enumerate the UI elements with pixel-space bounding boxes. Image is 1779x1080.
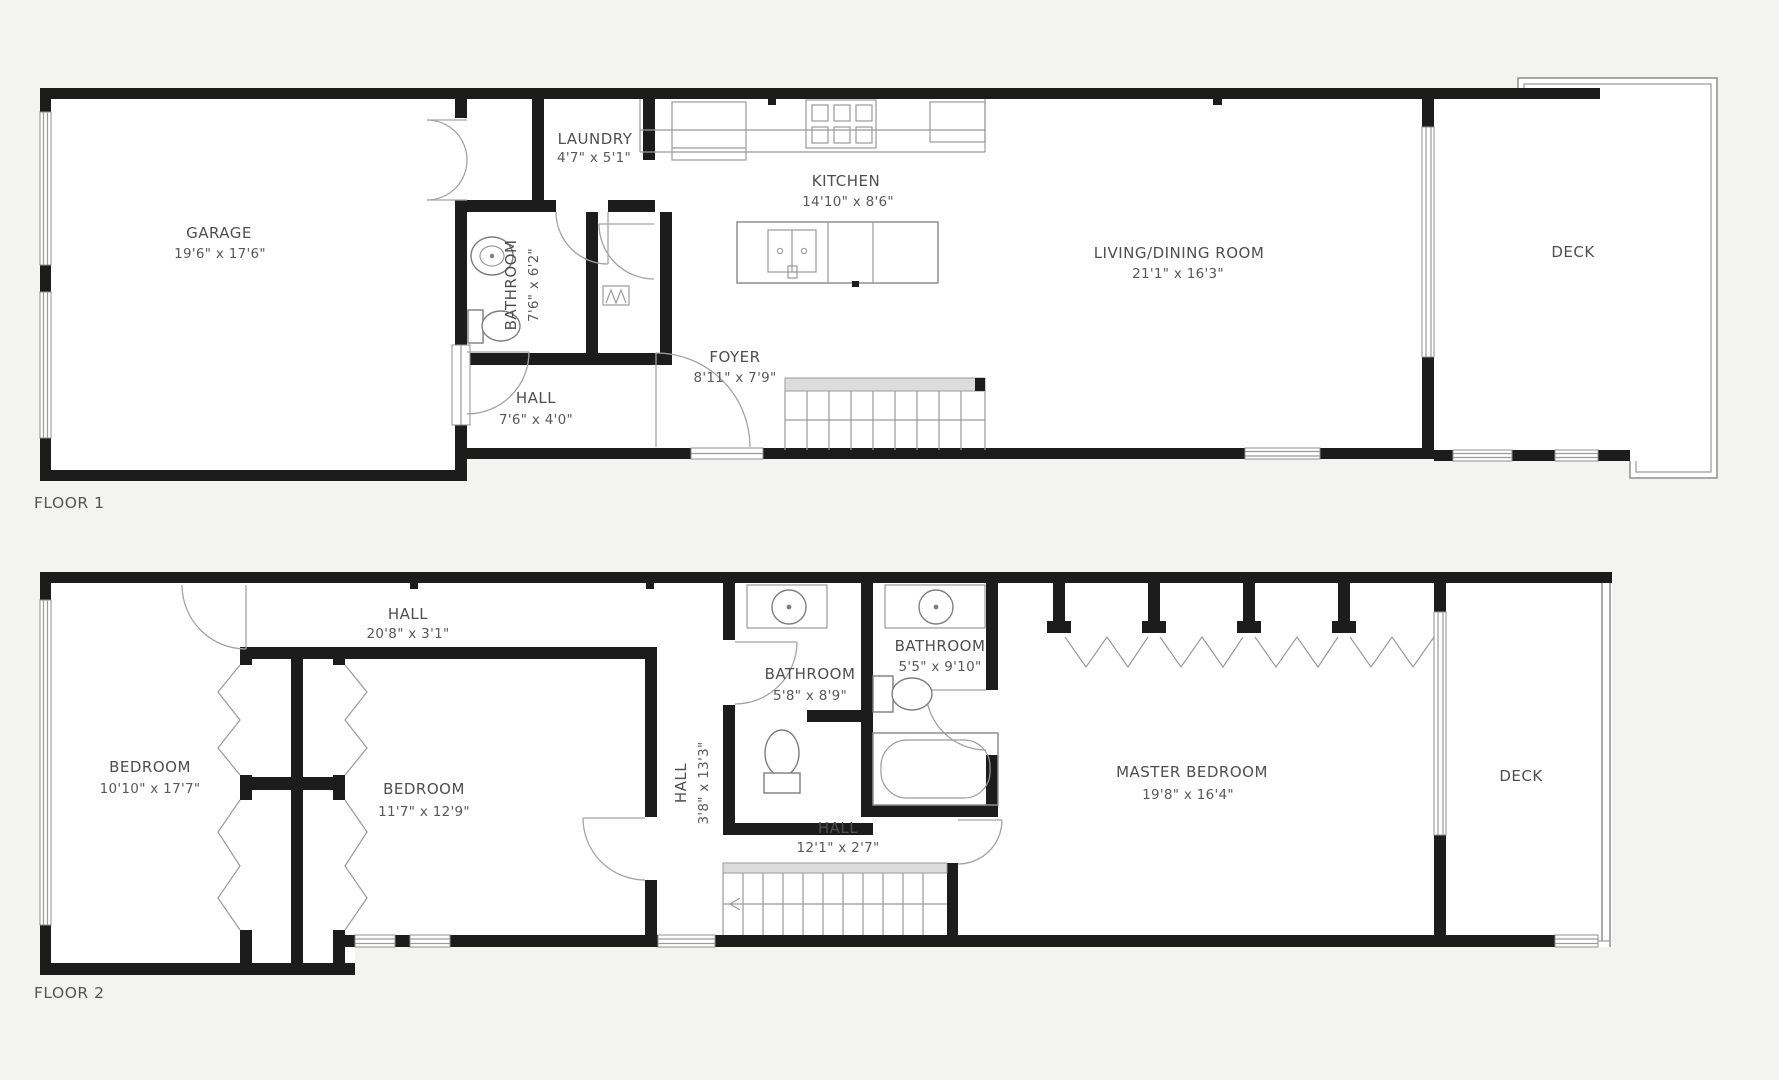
floor1-title: FLOOR 1 xyxy=(34,494,104,512)
hall-top-label: HALL xyxy=(388,605,428,623)
living-dining-label: LIVING/DINING ROOM xyxy=(1094,244,1265,262)
bedroom-middle-dims: 11'7" x 12'9" xyxy=(378,804,470,820)
deck1-label: DECK xyxy=(1551,243,1595,261)
floor2-footprint xyxy=(40,572,1612,975)
floor2-plan: HALL 20'8" x 3'1" BEDROOM 10'10" x 17'7"… xyxy=(34,572,1612,1002)
hall-vertical-dims: 3'8" x 13'3" xyxy=(696,742,712,825)
kitchen-dims: 14'10" x 8'6" xyxy=(802,194,894,210)
floorplan-page: GARAGE 19'6" x 17'6" LAUNDRY 4'7" x 5'1"… xyxy=(0,0,1779,1080)
bathroom-hall-label: BATHROOM xyxy=(765,665,856,683)
master-bedroom-dims: 19'8" x 16'4" xyxy=(1142,787,1234,803)
hall-top-dims: 20'8" x 3'1" xyxy=(367,626,450,642)
hall1-label: HALL xyxy=(516,389,556,407)
master-bedroom-label: MASTER BEDROOM xyxy=(1116,763,1268,781)
bathroom-master-dims: 5'5" x 9'10" xyxy=(899,659,982,675)
floor1-plan: GARAGE 19'6" x 17'6" LAUNDRY 4'7" x 5'1"… xyxy=(34,78,1717,512)
living-dining-dims: 21'1" x 16'3" xyxy=(1132,266,1224,282)
laundry-dims: 4'7" x 5'1" xyxy=(557,150,631,166)
floor2-title: FLOOR 2 xyxy=(34,984,104,1002)
hall-bottom-dims: 12'1" x 2'7" xyxy=(797,840,880,856)
garage-dims: 19'6" x 17'6" xyxy=(174,246,266,262)
toilet xyxy=(873,676,932,712)
hall-vertical-label: HALL xyxy=(672,763,690,803)
foyer-label: FOYER xyxy=(709,348,760,366)
bedroom-left-label: BEDROOM xyxy=(109,758,191,776)
bathroom1-dims: 7'6" x 6'2" xyxy=(526,248,542,322)
bathroom-master-label: BATHROOM xyxy=(895,637,986,655)
kitchen-label: KITCHEN xyxy=(812,172,881,190)
hall1-dims: 7'6" x 4'0" xyxy=(499,412,573,428)
bedroom-middle-label: BEDROOM xyxy=(383,780,465,798)
garage-label: GARAGE xyxy=(186,224,252,242)
floorplan-canvas: GARAGE 19'6" x 17'6" LAUNDRY 4'7" x 5'1"… xyxy=(0,0,1779,1080)
laundry-label: LAUNDRY xyxy=(558,130,633,148)
toilet xyxy=(764,730,800,793)
bathroom1-label: BATHROOM xyxy=(502,240,520,331)
deck2-label: DECK xyxy=(1499,767,1543,785)
bedroom-left-dims: 10'10" x 17'7" xyxy=(100,781,201,797)
foyer-dims: 8'11" x 7'9" xyxy=(694,370,777,386)
bathroom-hall-dims: 5'8" x 8'9" xyxy=(773,688,847,704)
hall-bottom-label: HALL xyxy=(818,819,858,837)
